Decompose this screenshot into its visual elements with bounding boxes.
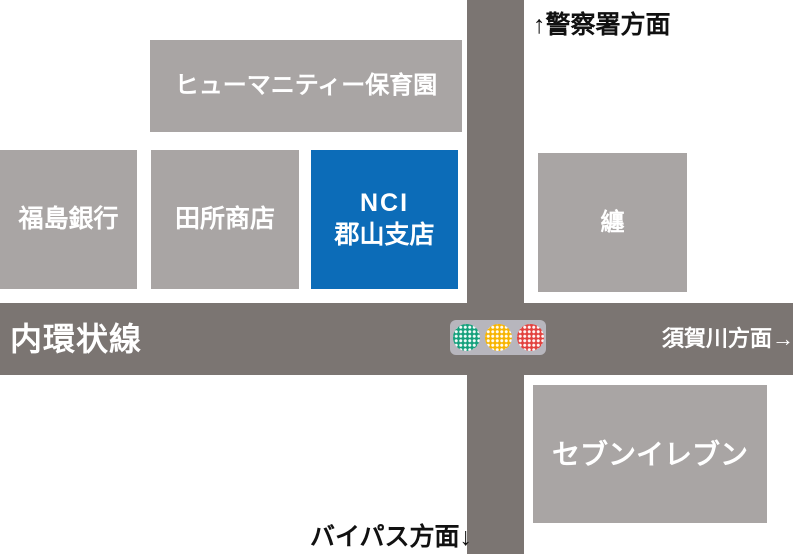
direction-east-label: 須賀川方面→ [662,303,794,375]
building-nci-koriyama-branch: NCI 郡山支店 [311,150,458,289]
building-nci-label-line2: 郡山支店 [334,220,434,251]
building-nci-label-line1: NCI [360,188,409,219]
building-tadokoro-shoten: 田所商店 [151,150,299,289]
access-map: 内環状線 須賀川方面→ ヒューマニティー保育園 福島銀行 田所商店 NCI 郡山… [0,0,800,554]
building-matoi-label: 纏 [601,208,625,238]
building-fukushima-bank-label: 福島銀行 [18,204,118,235]
building-matoi: 纏 [538,153,687,292]
building-nursery-label: ヒューマニティー保育園 [175,71,438,101]
direction-north-label: ↑警察署方面 [533,5,671,41]
building-seven-eleven: セブンイレブン [533,385,767,523]
traffic-light-yellow-lamp-icon [485,324,512,351]
building-seven-eleven-label: セブンイレブン [552,437,748,472]
building-tadokoro-shoten-label: 田所商店 [175,204,275,235]
direction-south-label: バイパス方面↓ [310,517,465,553]
traffic-light-red-lamp-icon [517,324,544,351]
traffic-light [450,320,546,355]
road-name-label: 内環状線 [10,303,142,375]
road-vertical [467,0,524,554]
road-horizontal: 内環状線 須賀川方面→ [0,303,793,375]
building-nursery: ヒューマニティー保育園 [150,40,462,132]
building-fukushima-bank: 福島銀行 [0,150,137,289]
traffic-light-green-lamp-icon [453,324,480,351]
